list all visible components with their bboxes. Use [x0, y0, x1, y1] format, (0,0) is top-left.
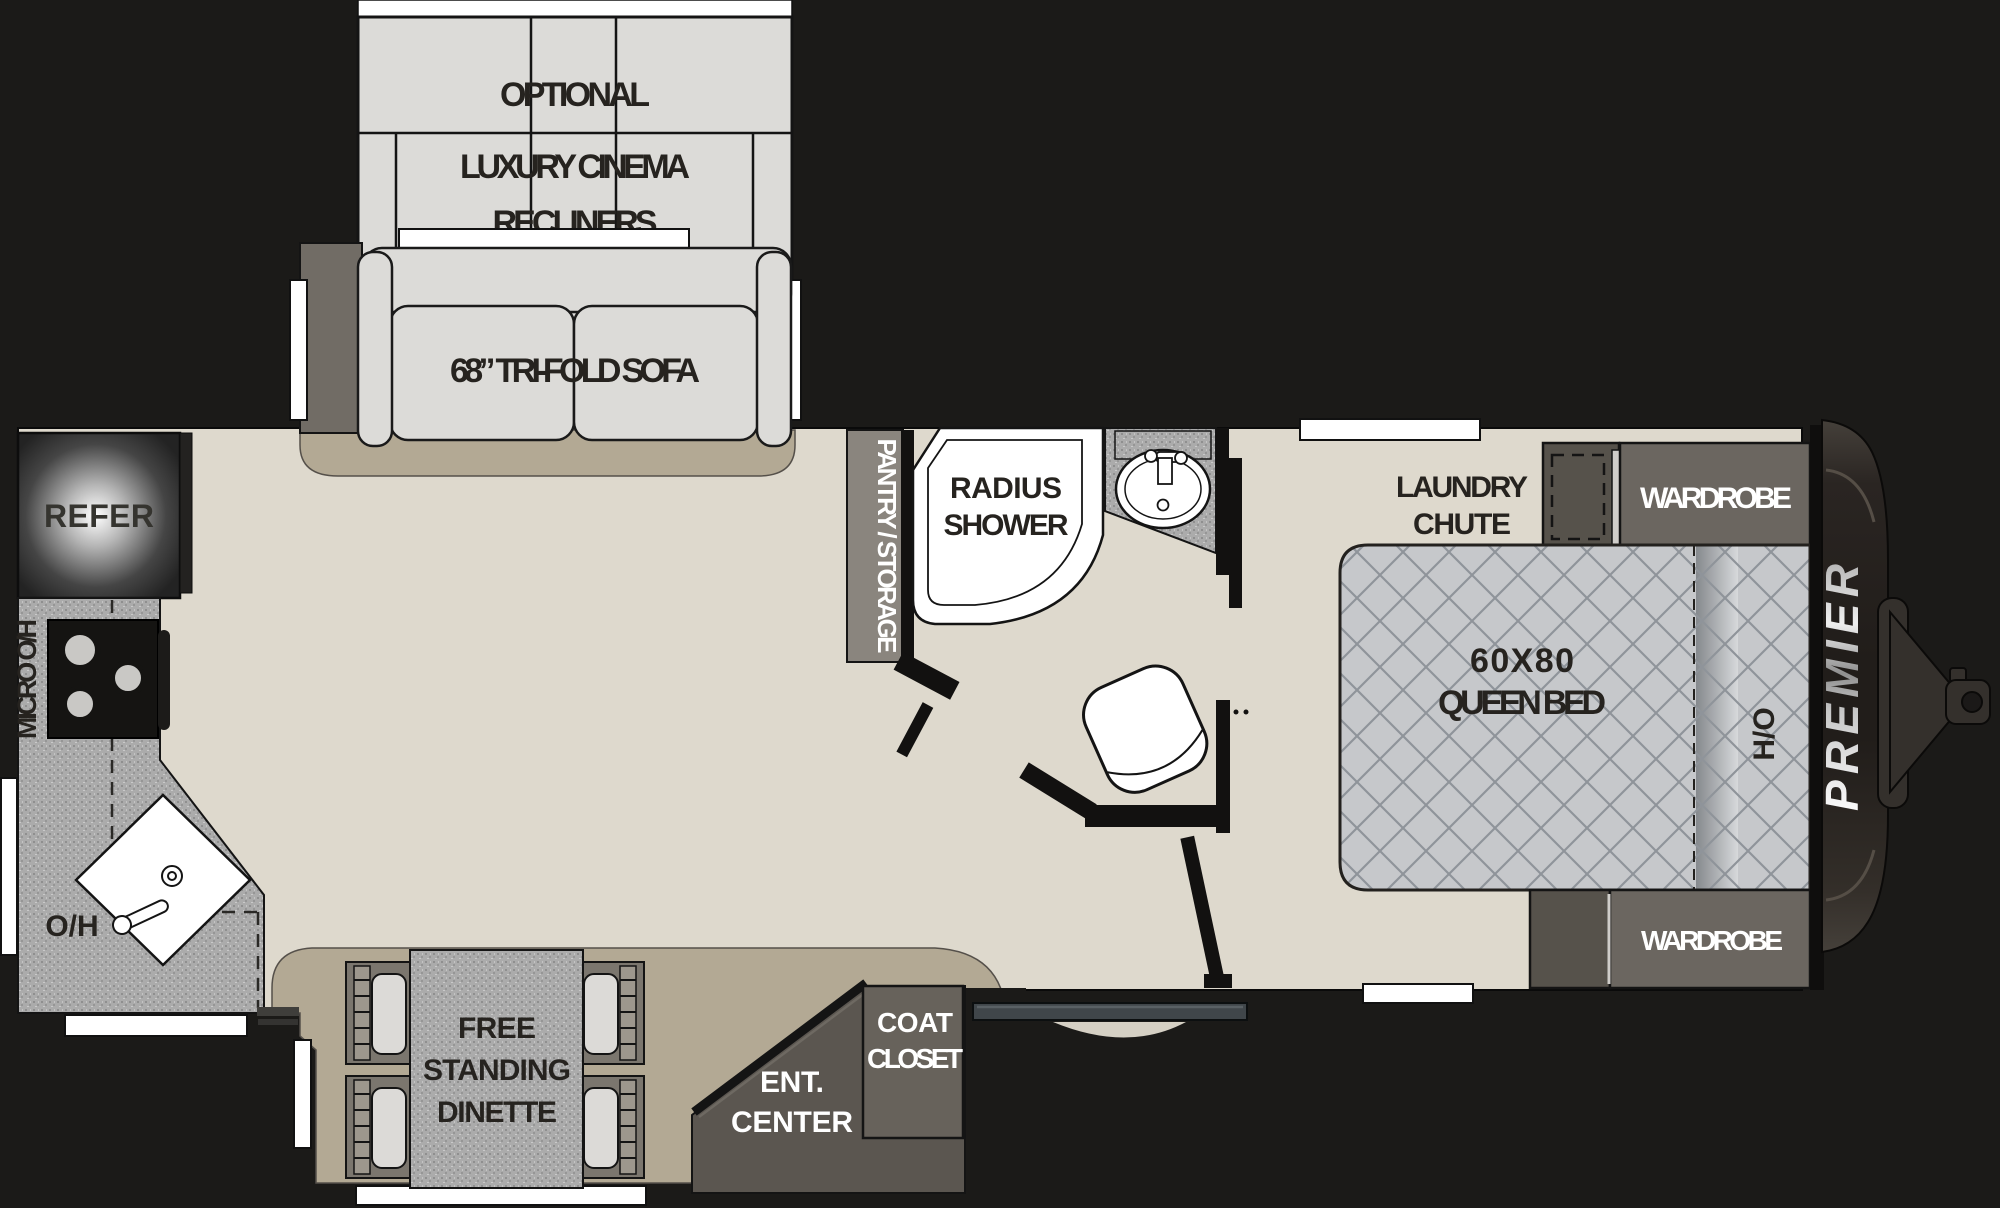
- coat-closet-label-line1: COAT: [877, 1007, 953, 1038]
- nightstand: [1543, 443, 1619, 553]
- wall: [1216, 428, 1229, 575]
- entry-step: [973, 1003, 1247, 1020]
- shower-label-line2: SHOWER: [944, 509, 1069, 542]
- laundry-chute-label-line1: LAUNDRY: [1396, 471, 1528, 504]
- rear-cabinet: [1530, 890, 1610, 988]
- refrigerator-trim: [180, 433, 192, 593]
- rear-wardrobe-label: WARDROBE: [1641, 925, 1783, 956]
- front-wardrobe-label: WARDROBE: [1640, 482, 1792, 515]
- dinette-label-line3: DINETTE: [437, 1096, 557, 1129]
- window: [1, 778, 17, 955]
- window: [1300, 419, 1480, 440]
- dinette-chair: [346, 962, 410, 1064]
- window: [290, 280, 307, 420]
- ent-center-label-line2: CENTER: [731, 1106, 853, 1139]
- wall: [1229, 458, 1242, 608]
- stove-handle: [158, 630, 170, 730]
- dinette-chair: [580, 962, 644, 1064]
- ent-center-label-line1: ENT.: [760, 1066, 824, 1099]
- window: [1363, 984, 1473, 1003]
- dinette-area: FREE STANDING DINETTE: [294, 950, 646, 1205]
- laundry-chute-label-line2: CHUTE: [1413, 508, 1511, 541]
- exterior-step: [257, 1007, 299, 1016]
- microwave-overhead-label: MICRO O/H: [12, 619, 42, 739]
- recliners-label-line2: LUXURY CINEMA: [460, 148, 690, 186]
- coat-closet-label-line2: CLOSET: [867, 1043, 963, 1074]
- exterior-step: [258, 1019, 298, 1025]
- sofa-label: 68” TRI-FOLD SOFA: [450, 352, 700, 390]
- queen-bed-label-line1: 60X80: [1470, 642, 1574, 680]
- window: [294, 1040, 311, 1148]
- headboard-overhead-label: H/O: [1748, 707, 1781, 760]
- tri-fold-sofa: 68” TRI-FOLD SOFA: [358, 248, 791, 446]
- overhead-cabinet-label: O/H: [45, 910, 98, 943]
- front-cap: PREMIER: [1810, 420, 1888, 990]
- dinette-label-line1: FREE: [458, 1012, 536, 1045]
- refrigerator-label: REFER: [44, 498, 154, 534]
- window: [358, 0, 792, 17]
- recliners-label-line1: OPTIONAL: [500, 76, 650, 114]
- coat-closet: COAT CLOSET: [863, 986, 963, 1138]
- dinette-chair: [580, 1076, 644, 1178]
- sofa-side-panel: [300, 243, 362, 433]
- pantry-label: PANTRY / STORAGE: [872, 439, 902, 654]
- window: [65, 1015, 247, 1036]
- floorplan-svg: OPTIONAL LUXURY CINEMA RECLINERS 68” TRI…: [0, 0, 2000, 1208]
- dinette-label-line2: STANDING: [423, 1054, 571, 1087]
- entry-door-hinge: [1204, 974, 1232, 988]
- floorplan-stage: OPTIONAL LUXURY CINEMA RECLINERS 68” TRI…: [0, 0, 2000, 1208]
- dinette-chair: [346, 1076, 410, 1178]
- wall: [1085, 805, 1230, 827]
- sofa-slideout: 68” TRI-FOLD SOFA: [290, 229, 801, 476]
- queen-bed-label-line2: QUEEN BED: [1438, 684, 1606, 722]
- wall: [1216, 700, 1230, 833]
- shower-label-line1: RADIUS: [950, 472, 1062, 505]
- queen-bed: 60X80 QUEEN BED H/O: [1340, 545, 1810, 890]
